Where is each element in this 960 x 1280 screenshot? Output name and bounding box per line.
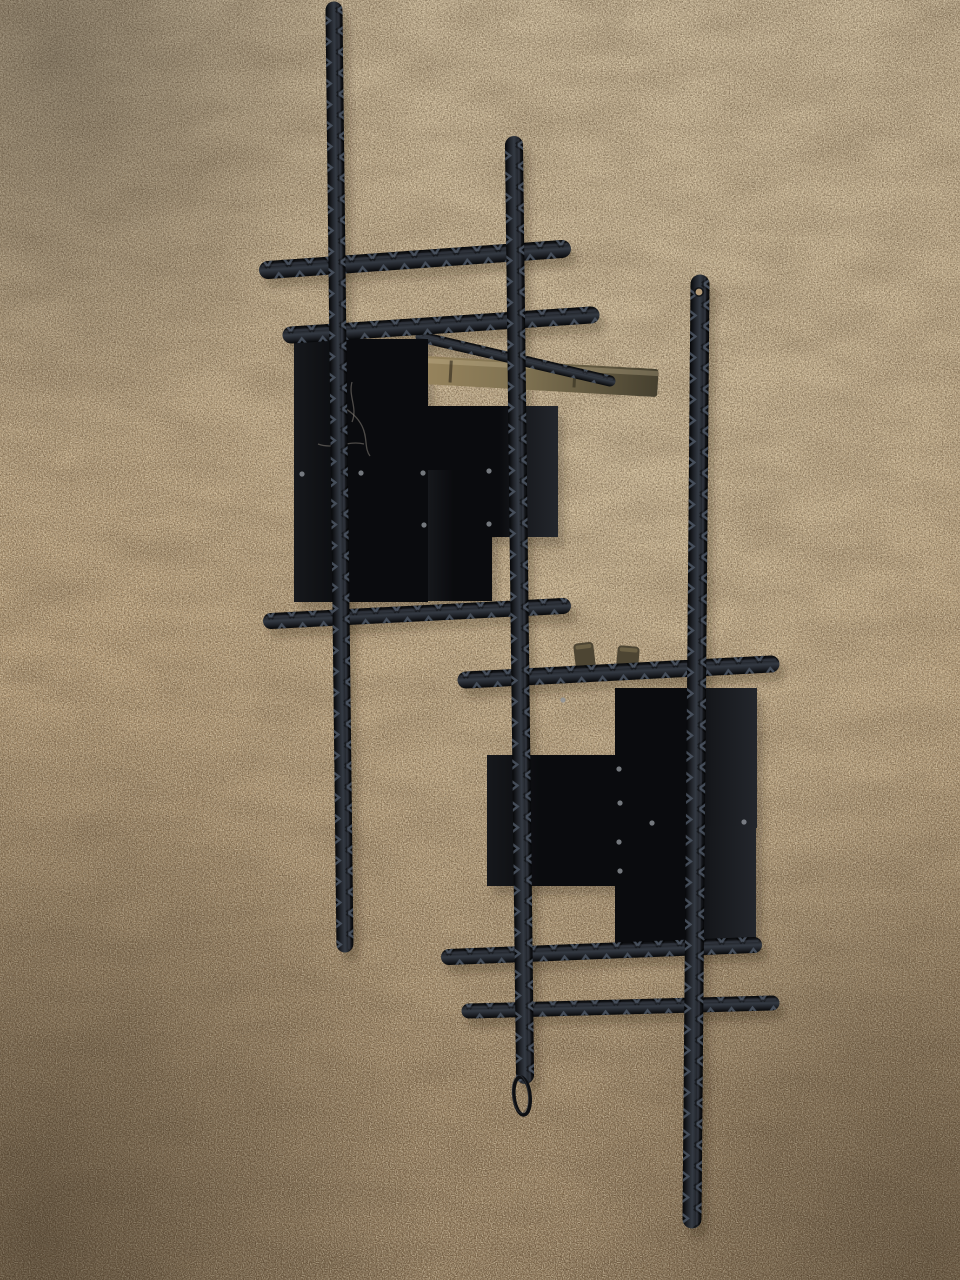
carpet-shade-bottom-right [0,0,960,1280]
weld-dot [741,819,746,824]
weld-dot [299,471,304,476]
weld-dot [560,697,565,702]
weld-dot [421,522,426,527]
weld-dot [617,800,622,805]
weld-dot [486,468,491,473]
photo-frame: Photograph of a black brutalist welded r… [0,0,960,1280]
lower-plate-left [487,755,619,886]
weld-dot [617,868,622,873]
weld-dot [616,839,621,844]
weld-dot [420,470,425,475]
hanging-hole [694,287,704,297]
weld-dot [358,470,363,475]
lower-plate-top [615,688,757,828]
weld-dot [616,766,621,771]
weld-dot [649,820,654,825]
carpet-background [0,0,960,1280]
weld-dot [486,521,491,526]
upper-plate-lower [428,470,492,601]
